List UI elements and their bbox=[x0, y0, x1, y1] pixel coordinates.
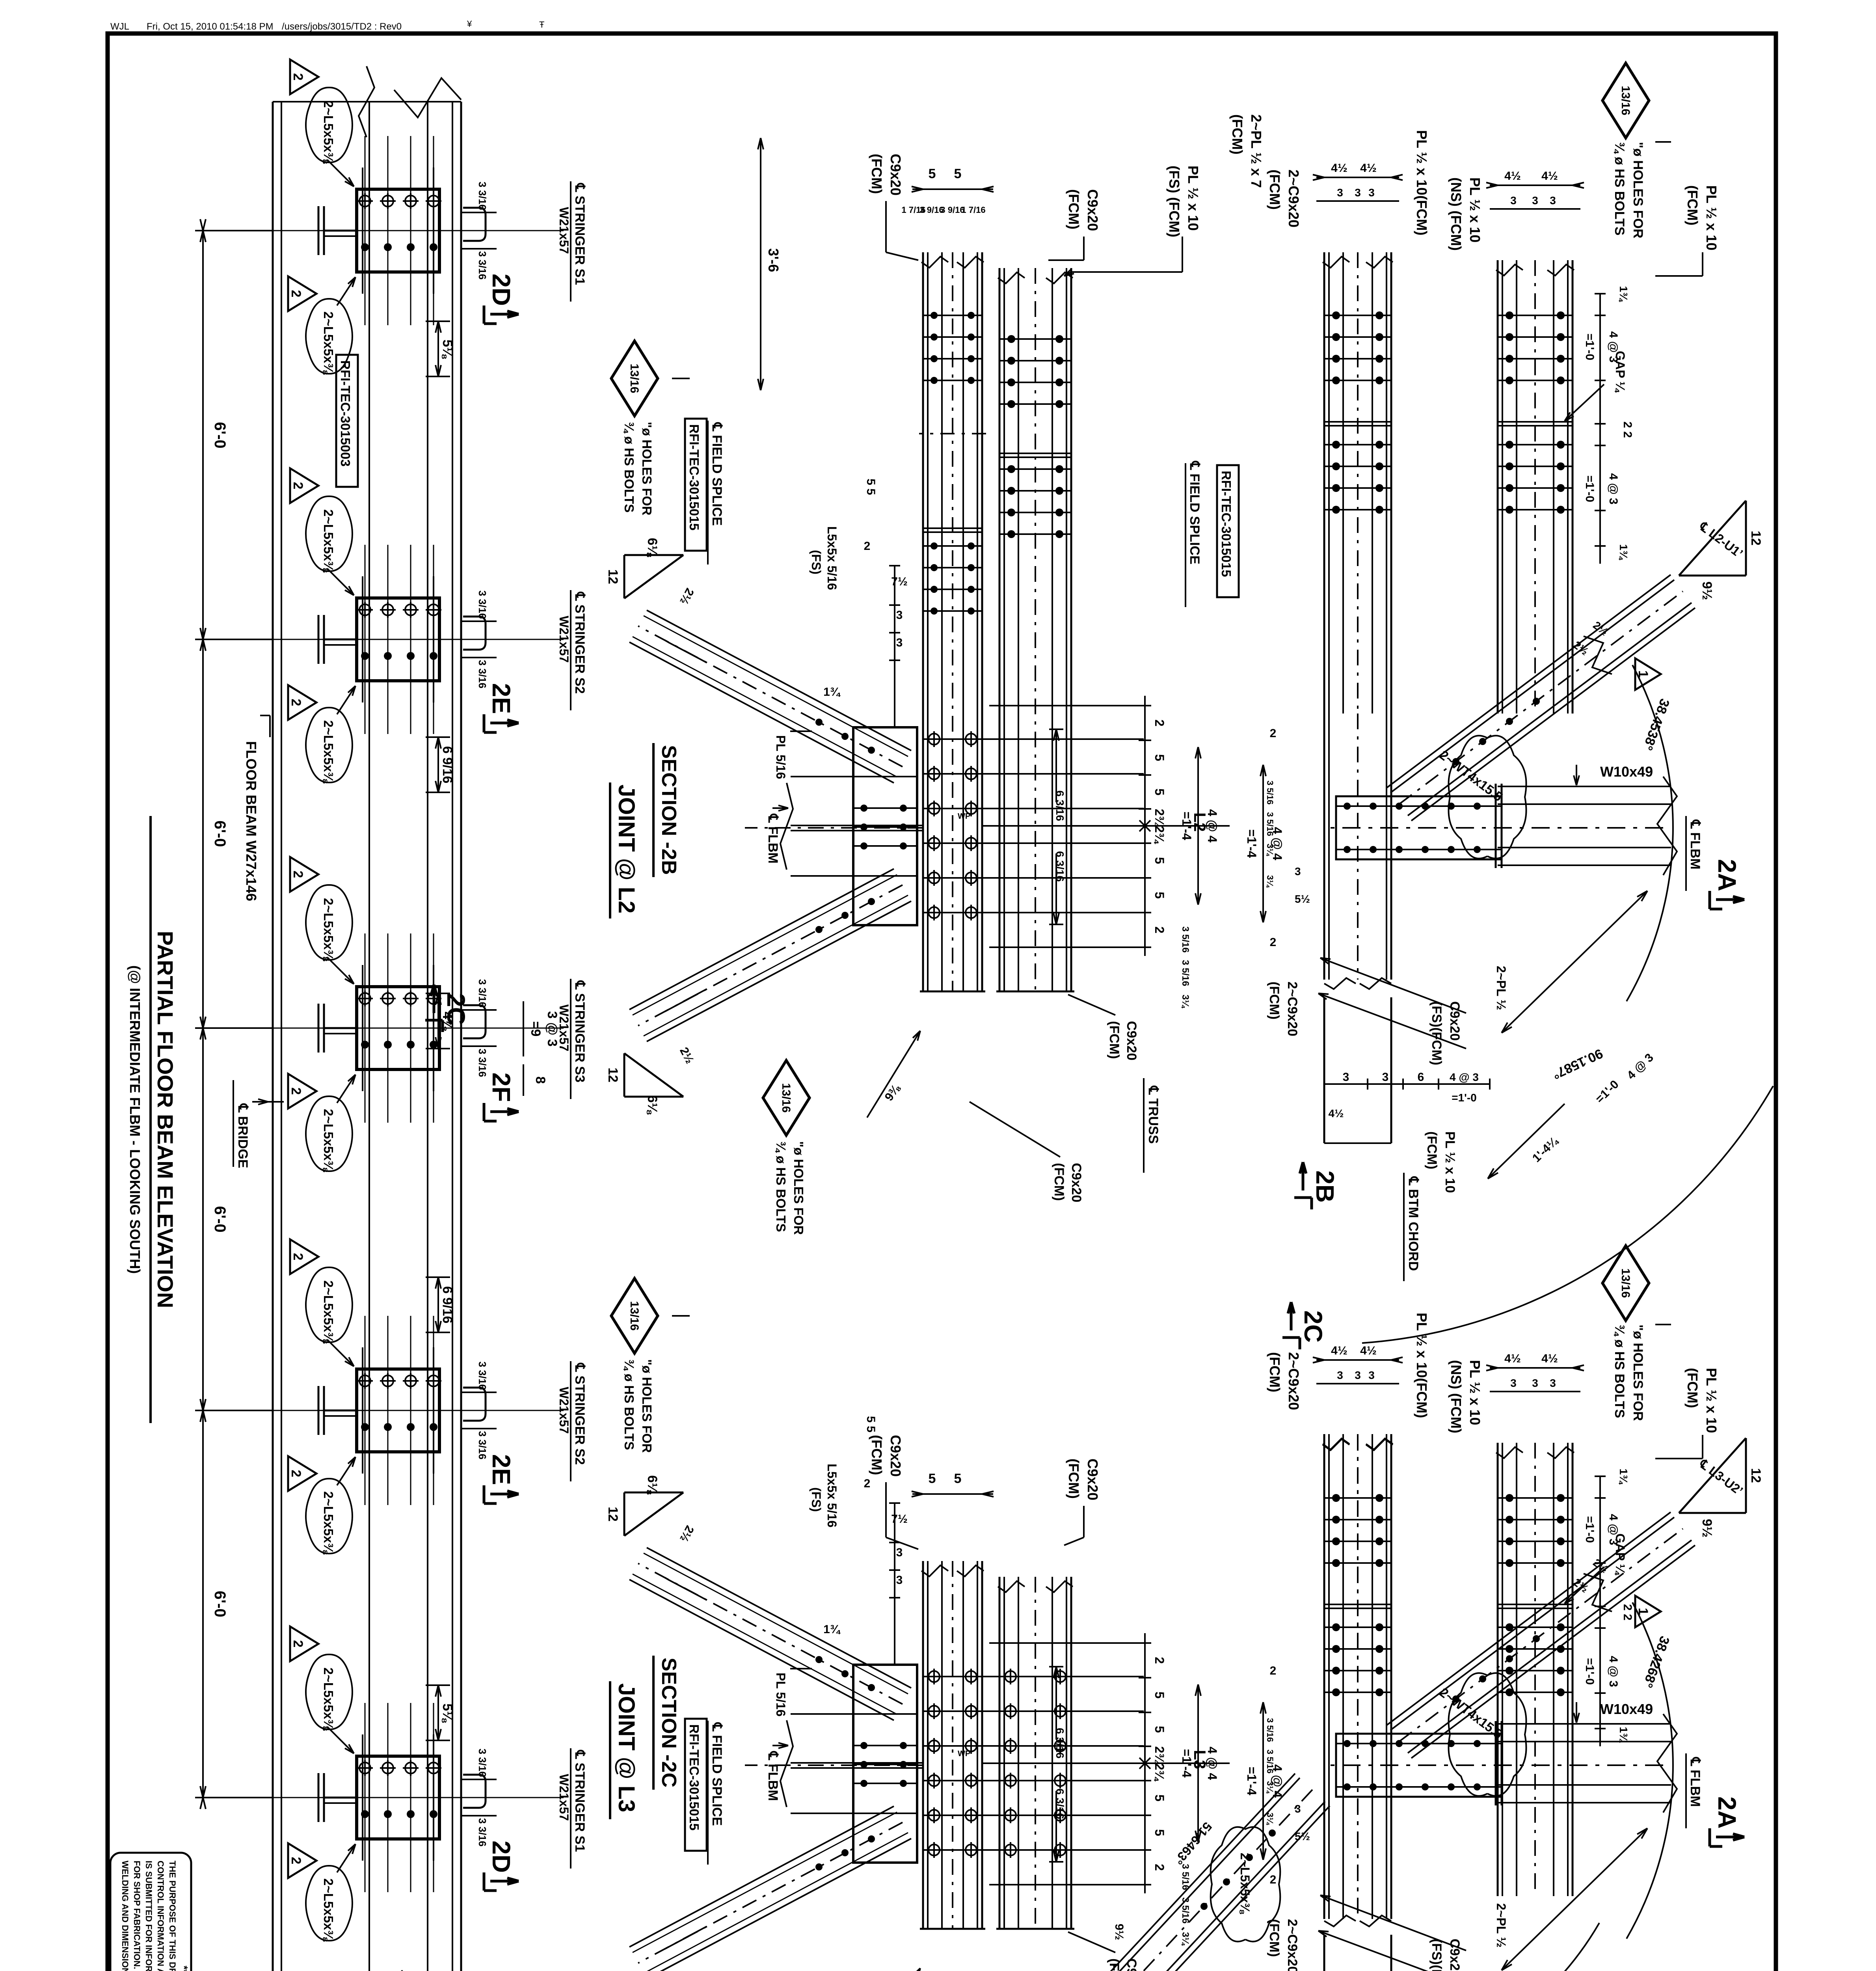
svg-text:4½: 4½ bbox=[1331, 162, 1347, 175]
svg-text:℄ STRINGER S2: ℄ STRINGER S2 bbox=[572, 591, 587, 694]
svg-text:6⅛: 6⅛ bbox=[645, 538, 660, 557]
svg-text:5: 5 bbox=[1152, 1794, 1167, 1801]
svg-text:PL 5/16: PL 5/16 bbox=[774, 1673, 788, 1716]
svg-text:2: 2 bbox=[1270, 1873, 1277, 1886]
svg-text:¾ ø HS BOLTS: ¾ ø HS BOLTS bbox=[774, 1141, 788, 1232]
svg-text:C9x20: C9x20 bbox=[888, 154, 904, 196]
svg-text:3 3/16: 3 3/16 bbox=[476, 182, 488, 210]
svg-text:2: 2 bbox=[288, 290, 303, 298]
svg-text:2: 2 bbox=[864, 1477, 871, 1490]
svg-text:W21x57: W21x57 bbox=[557, 1774, 571, 1821]
svg-text:IS SUBMITTED FOR INFORMATION O: IS SUBMITTED FOR INFORMATION ONLY ℄ IS N… bbox=[144, 1861, 154, 1971]
svg-text:PL ½ x 10: PL ½ x 10 bbox=[1703, 1368, 1720, 1433]
svg-text:3: 3 bbox=[896, 1546, 903, 1559]
svg-text:(FCM): (FCM) bbox=[1684, 1368, 1701, 1408]
svg-text:2¾: 2¾ bbox=[1152, 826, 1167, 844]
svg-text:℄ BRIDGE: ℄ BRIDGE bbox=[235, 1103, 250, 1168]
svg-text:5: 5 bbox=[1152, 892, 1167, 899]
svg-text:PL ½ x 10(FCM): PL ½ x 10(FCM) bbox=[1414, 1313, 1430, 1418]
svg-text:(FCM): (FCM) bbox=[1107, 1021, 1122, 1059]
svg-text:2~L5x5x⅜: 2~L5x5x⅜ bbox=[321, 898, 336, 961]
svg-text:2E: 2E bbox=[487, 683, 516, 714]
svg-text:=1'-4: =1'-4 bbox=[1245, 1767, 1259, 1796]
svg-text:2: 2 bbox=[288, 1470, 303, 1477]
svg-text:(FS): (FS) bbox=[809, 1487, 823, 1512]
svg-text:2~C9x20: 2~C9x20 bbox=[1286, 1352, 1302, 1410]
svg-text:3 5/16: 3 5/16 bbox=[1180, 960, 1191, 986]
svg-text:2¾: 2¾ bbox=[1152, 1763, 1167, 1782]
svg-text:2: 2 bbox=[288, 699, 303, 706]
svg-text:GAP ¼: GAP ¼ bbox=[1613, 351, 1627, 393]
svg-text:C9x20: C9x20 bbox=[888, 1435, 904, 1477]
svg-text:3 5/16: 3 5/16 bbox=[1265, 781, 1275, 805]
svg-text:"ø HOLES FOR: "ø HOLES FOR bbox=[1630, 142, 1645, 238]
svg-text:3 3/16: 3 3/16 bbox=[476, 591, 488, 619]
svg-text:2A: 2A bbox=[1713, 1796, 1741, 1829]
svg-text:1¾: 1¾ bbox=[1617, 1469, 1630, 1485]
svg-text:2~C9x20: 2~C9x20 bbox=[1285, 982, 1300, 1036]
svg-text:WJL: WJL bbox=[110, 21, 129, 32]
svg-text:3 5/16: 3 5/16 bbox=[1265, 1749, 1275, 1774]
svg-text:4 @ 3: 4 @ 3 bbox=[1450, 1071, 1479, 1083]
svg-text:C9x20: C9x20 bbox=[1085, 1459, 1101, 1500]
svg-text:1¾: 1¾ bbox=[1617, 286, 1630, 303]
svg-text:12: 12 bbox=[605, 1507, 620, 1522]
svg-text:2~L5x5x⅜: 2~L5x5x⅜ bbox=[321, 311, 336, 375]
svg-text:W21x57: W21x57 bbox=[557, 616, 571, 663]
svg-text:2: 2 bbox=[1152, 926, 1167, 933]
svg-text:/users/jobs/3015/TD2 : Rev0: /users/jobs/3015/TD2 : Rev0 bbox=[282, 21, 402, 32]
svg-text:(FCM): (FCM) bbox=[1684, 185, 1701, 225]
svg-text:℄ STRINGER S3: ℄ STRINGER S3 bbox=[572, 980, 587, 1082]
svg-text:=1'-0: =1'-0 bbox=[1452, 1092, 1476, 1104]
svg-text:3: 3 bbox=[1532, 1377, 1538, 1389]
svg-text:5: 5 bbox=[929, 1471, 936, 1486]
svg-text:"ø HOLES FOR: "ø HOLES FOR bbox=[1630, 1325, 1645, 1421]
svg-text:(FCM): (FCM) bbox=[1267, 170, 1283, 210]
svg-text:Fri, Oct 15, 2010 01:54:18 PM: Fri, Oct 15, 2010 01:54:18 PM bbox=[147, 21, 274, 32]
svg-text:6: 6 bbox=[1418, 1071, 1424, 1084]
svg-text:2: 2 bbox=[864, 540, 871, 553]
svg-text:℄ FLBM: ℄ FLBM bbox=[765, 813, 780, 864]
svg-text:2~L5x5x⅜: 2~L5x5x⅜ bbox=[321, 1491, 336, 1555]
svg-text:4½: 4½ bbox=[1504, 1352, 1521, 1365]
svg-text:3 3/16: 3 3/16 bbox=[476, 1362, 488, 1390]
svg-text:=1'-0: =1'-0 bbox=[1583, 333, 1596, 360]
svg-text:WP: WP bbox=[958, 1749, 970, 1758]
svg-text:2E: 2E bbox=[487, 1454, 516, 1485]
svg-text:5: 5 bbox=[1152, 754, 1167, 761]
svg-text:JOINT @ L3: JOINT @ L3 bbox=[614, 1683, 639, 1812]
svg-text:6⅛: 6⅛ bbox=[645, 1475, 660, 1495]
svg-text:6 9/16: 6 9/16 bbox=[440, 1286, 455, 1324]
svg-text:2: 2 bbox=[290, 871, 305, 878]
svg-text:2C: 2C bbox=[1299, 1310, 1327, 1343]
svg-text:6'-0: 6'-0 bbox=[211, 422, 229, 448]
svg-text:2: 2 bbox=[288, 1088, 303, 1095]
svg-text:=1'-0: =1'-0 bbox=[1583, 1658, 1596, 1685]
svg-text:3: 3 bbox=[1510, 1377, 1517, 1389]
svg-text:2¾: 2¾ bbox=[1152, 1746, 1167, 1765]
svg-text:2: 2 bbox=[1270, 727, 1277, 740]
svg-text:5⅛: 5⅛ bbox=[440, 339, 455, 359]
svg-text:C9x20: C9x20 bbox=[1069, 1163, 1084, 1202]
svg-text:℄ FIELD SPLICE: ℄ FIELD SPLICE bbox=[709, 422, 724, 526]
svg-text:2: 2 bbox=[1152, 719, 1167, 727]
svg-text:6⅛: 6⅛ bbox=[645, 1095, 660, 1115]
svg-text:3 @ 3: 3 @ 3 bbox=[545, 1011, 560, 1047]
svg-text:4 @ 3: 4 @ 3 bbox=[1607, 1656, 1620, 1687]
svg-text:THE PURPOSE OF THIS DRAWING IS: THE PURPOSE OF THIS DRAWING IS TO COORDI… bbox=[167, 1861, 177, 1971]
svg-text:6'-0: 6'-0 bbox=[211, 1206, 229, 1232]
svg-text:3: 3 bbox=[1510, 194, 1517, 207]
svg-text:(FCM): (FCM) bbox=[1066, 189, 1082, 229]
svg-text:℄ BTM CHORD: ℄ BTM CHORD bbox=[1406, 1176, 1421, 1271]
svg-text:5: 5 bbox=[1152, 857, 1167, 864]
svg-text:5⅛: 5⅛ bbox=[440, 1703, 455, 1723]
svg-text:** NOTE **: ** NOTE ** bbox=[178, 1965, 190, 1971]
svg-text:=1'-4: =1'-4 bbox=[1245, 829, 1259, 858]
svg-text:6'-0: 6'-0 bbox=[211, 1591, 229, 1617]
svg-text:2~C9x20: 2~C9x20 bbox=[1285, 1919, 1300, 1971]
svg-text:2: 2 bbox=[288, 1857, 303, 1865]
svg-text:PL 5/16: PL 5/16 bbox=[774, 735, 788, 779]
svg-text:3¼: 3¼ bbox=[1265, 1781, 1275, 1794]
svg-text:5: 5 bbox=[1152, 1829, 1167, 1836]
svg-text:5: 5 bbox=[1152, 1726, 1167, 1733]
svg-text:℄ STRINGER S1: ℄ STRINGER S1 bbox=[572, 1749, 587, 1852]
svg-text:(FS): (FS) bbox=[809, 550, 823, 574]
svg-text:2B: 2B bbox=[1311, 1170, 1339, 1203]
svg-text:2~L5x5x⅜: 2~L5x5x⅜ bbox=[321, 1109, 336, 1172]
svg-text:RFI-TEC-3015015: RFI-TEC-3015015 bbox=[687, 424, 702, 531]
svg-text:3: 3 bbox=[1355, 186, 1361, 199]
svg-text:PL ½ x 10(FCM): PL ½ x 10(FCM) bbox=[1414, 130, 1430, 235]
svg-text:13/16: 13/16 bbox=[1619, 1268, 1632, 1298]
svg-text:2C: 2C bbox=[442, 993, 470, 1025]
svg-text:13/16: 13/16 bbox=[628, 1301, 641, 1330]
svg-text:3 9/16: 3 9/16 bbox=[940, 205, 964, 215]
svg-text:¾ ø HS BOLTS: ¾ ø HS BOLTS bbox=[622, 1359, 636, 1450]
svg-text:RFI-TEC-3015003: RFI-TEC-3015003 bbox=[338, 360, 353, 467]
svg-text:WP: WP bbox=[958, 812, 970, 821]
svg-text:9½: 9½ bbox=[1699, 581, 1714, 600]
svg-text:2~L5x5x⅜: 2~L5x5x⅜ bbox=[321, 1280, 336, 1344]
svg-text:PL ½ x 10: PL ½ x 10 bbox=[1185, 166, 1201, 231]
svg-text:¾ ø HS BOLTS: ¾ ø HS BOLTS bbox=[622, 422, 636, 512]
svg-text:2~L5x5x⅜: 2~L5x5x⅜ bbox=[321, 101, 336, 164]
svg-text:℄ FLBM: ℄ FLBM bbox=[1688, 819, 1703, 870]
svg-text:4½: 4½ bbox=[1331, 1344, 1347, 1357]
svg-text:3 3/16: 3 3/16 bbox=[476, 251, 488, 279]
svg-text:L5x5x 5/16: L5x5x 5/16 bbox=[825, 526, 839, 590]
svg-text:3: 3 bbox=[1368, 1369, 1375, 1381]
svg-text:L2: L2 bbox=[1191, 812, 1209, 832]
svg-text:5: 5 bbox=[1152, 788, 1167, 795]
svg-text:2~PL ½: 2~PL ½ bbox=[1494, 1903, 1508, 1947]
svg-text:2 2: 2 2 bbox=[1621, 421, 1634, 438]
svg-text:¥: ¥ bbox=[467, 19, 472, 29]
svg-text:3 3/16: 3 3/16 bbox=[476, 979, 488, 1008]
svg-text:2~L5x5x⅜: 2~L5x5x⅜ bbox=[1238, 1853, 1252, 1914]
svg-text:(FCM): (FCM) bbox=[1267, 982, 1282, 1019]
svg-text:3 3/16: 3 3/16 bbox=[476, 1749, 488, 1777]
svg-text:2: 2 bbox=[290, 482, 305, 490]
svg-text:8: 8 bbox=[533, 1077, 548, 1084]
svg-text:2: 2 bbox=[1152, 1864, 1167, 1871]
svg-text:(FCM): (FCM) bbox=[1424, 1131, 1439, 1169]
svg-text:WELDING AND DIMENSIONS REQ'D F: WELDING AND DIMENSIONS REQ'D FOR FABRICA… bbox=[120, 1861, 130, 1971]
svg-text:RFI-TEC-3015015: RFI-TEC-3015015 bbox=[1219, 471, 1234, 577]
svg-text:6'-0: 6'-0 bbox=[211, 820, 229, 847]
svg-text:3: 3 bbox=[1343, 1071, 1349, 1084]
svg-text:2~L5x5x⅜: 2~L5x5x⅜ bbox=[321, 1667, 336, 1731]
svg-text:3: 3 bbox=[896, 1574, 903, 1587]
svg-text:9½: 9½ bbox=[1113, 1924, 1126, 1940]
svg-text:2: 2 bbox=[1152, 1657, 1167, 1664]
svg-text:3: 3 bbox=[896, 609, 903, 622]
svg-text:3 5/16: 3 5/16 bbox=[1180, 1864, 1191, 1890]
svg-text:C9x20: C9x20 bbox=[1085, 189, 1101, 231]
svg-text:=1'-0: =1'-0 bbox=[1583, 475, 1596, 502]
svg-text:℄ FIELD SPLICE: ℄ FIELD SPLICE bbox=[709, 1722, 724, 1826]
svg-text:L5x5x 5/16: L5x5x 5/16 bbox=[825, 1464, 839, 1528]
svg-text:RFI-TEC-3015015: RFI-TEC-3015015 bbox=[687, 1724, 702, 1831]
svg-text:3'-6: 3'-6 bbox=[765, 248, 782, 272]
svg-text:℄ STRINGER S1: ℄ STRINGER S1 bbox=[572, 183, 587, 285]
svg-text:13/16: 13/16 bbox=[1619, 86, 1632, 115]
svg-text:(FCM): (FCM) bbox=[1267, 1352, 1283, 1392]
svg-text:4½: 4½ bbox=[1360, 1344, 1377, 1357]
svg-text:(@ INTERMEDIATE FLBM - LOOKING: (@ INTERMEDIATE FLBM - LOOKING SOUTH) bbox=[127, 965, 143, 1274]
svg-text:W10x49: W10x49 bbox=[1600, 764, 1653, 780]
svg-text:¾ ø HS BOLTS: ¾ ø HS BOLTS bbox=[1612, 142, 1627, 235]
svg-text:3: 3 bbox=[1337, 1369, 1343, 1381]
svg-text:PL ½ x 10: PL ½ x 10 bbox=[1467, 177, 1483, 242]
svg-text:PL ½ x 10: PL ½ x 10 bbox=[1442, 1131, 1457, 1193]
svg-text:(FCM): (FCM) bbox=[869, 1435, 885, 1475]
svg-text:2D: 2D bbox=[487, 274, 516, 306]
svg-text:W10x49: W10x49 bbox=[1600, 1701, 1653, 1717]
svg-text:Ŧ: Ŧ bbox=[539, 20, 544, 30]
svg-text:3¼: 3¼ bbox=[1180, 995, 1191, 1008]
svg-text:W21x57: W21x57 bbox=[557, 207, 571, 254]
svg-text:2: 2 bbox=[1270, 1664, 1277, 1677]
svg-text:4½: 4½ bbox=[1360, 162, 1377, 175]
svg-text:"ø HOLES FOR: "ø HOLES FOR bbox=[640, 422, 654, 516]
svg-text:℄ FLBM: ℄ FLBM bbox=[765, 1751, 780, 1801]
svg-text:12: 12 bbox=[1748, 1468, 1763, 1483]
svg-text:1¾: 1¾ bbox=[823, 1623, 841, 1636]
svg-text:1 7/16: 1 7/16 bbox=[961, 205, 985, 215]
svg-text:4½: 4½ bbox=[1541, 170, 1558, 183]
svg-text:℄ FLBM: ℄ FLBM bbox=[1688, 1757, 1703, 1807]
svg-text:(NS) (FCM): (NS) (FCM) bbox=[1448, 177, 1464, 251]
svg-text:3: 3 bbox=[1295, 865, 1301, 877]
svg-text:(FCM): (FCM) bbox=[1229, 114, 1245, 155]
svg-text:3 5/16: 3 5/16 bbox=[1265, 1718, 1275, 1742]
svg-text:3 5/16: 3 5/16 bbox=[1180, 926, 1191, 953]
svg-text:SECTION -2B: SECTION -2B bbox=[657, 745, 680, 875]
svg-text:3 3/16: 3 3/16 bbox=[476, 1431, 488, 1459]
svg-text:(FS)(FCM): (FS)(FCM) bbox=[1429, 1939, 1444, 1971]
svg-text:"ø HOLES FOR: "ø HOLES FOR bbox=[640, 1359, 654, 1453]
svg-text:3: 3 bbox=[1368, 186, 1375, 199]
svg-text:℄ TRUSS: ℄ TRUSS bbox=[1146, 1085, 1161, 1144]
svg-text:℄ FIELD SPLICE: ℄ FIELD SPLICE bbox=[1187, 460, 1202, 564]
svg-text:5: 5 bbox=[954, 166, 962, 181]
svg-text:12: 12 bbox=[605, 1067, 620, 1082]
svg-text:4½: 4½ bbox=[1541, 1352, 1558, 1365]
svg-text:5 5: 5 5 bbox=[864, 1416, 877, 1433]
svg-text:1¾: 1¾ bbox=[1617, 544, 1630, 561]
svg-text:JOINT @ L2: JOINT @ L2 bbox=[614, 784, 639, 913]
svg-text:=1'-0: =1'-0 bbox=[1583, 1516, 1596, 1543]
svg-text:3¼: 3¼ bbox=[1180, 1932, 1191, 1946]
svg-text:13/16: 13/16 bbox=[780, 1083, 793, 1112]
svg-text:3: 3 bbox=[1382, 1071, 1389, 1084]
svg-text:2~L5x5x⅜: 2~L5x5x⅜ bbox=[321, 1878, 336, 1942]
svg-text:FOR SHOP FABRICATION. DETAIL: FOR SHOP FABRICATION. DETAIL DWGS WILL S… bbox=[132, 1861, 142, 1971]
svg-text:2: 2 bbox=[290, 1253, 305, 1261]
svg-text:5: 5 bbox=[929, 166, 936, 181]
svg-text:3 3/16: 3 3/16 bbox=[476, 1818, 488, 1846]
svg-text:L3: L3 bbox=[1191, 1750, 1209, 1769]
svg-text:PL ½ x 10: PL ½ x 10 bbox=[1467, 1360, 1483, 1425]
svg-text:3 3/16: 3 3/16 bbox=[476, 660, 488, 688]
svg-text:2~PL ½ x 7: 2~PL ½ x 7 bbox=[1248, 114, 1264, 188]
svg-text:3 3/16: 3 3/16 bbox=[476, 1049, 488, 1077]
svg-text:2: 2 bbox=[290, 73, 305, 81]
svg-text:SECTION -2C: SECTION -2C bbox=[657, 1658, 680, 1787]
svg-text:2~C9x20: 2~C9x20 bbox=[1286, 170, 1302, 227]
svg-text:1¾: 1¾ bbox=[823, 686, 841, 699]
svg-text:℄ STRINGER S2: ℄ STRINGER S2 bbox=[572, 1362, 587, 1465]
svg-text:7½: 7½ bbox=[891, 575, 908, 588]
svg-text:2: 2 bbox=[290, 1640, 305, 1648]
svg-text:(FCM): (FCM) bbox=[1107, 1958, 1122, 1971]
svg-text:=9: =9 bbox=[528, 1021, 543, 1037]
svg-text:3: 3 bbox=[1532, 194, 1538, 207]
svg-text:PL ½ x 10: PL ½ x 10 bbox=[1703, 185, 1720, 250]
svg-text:PARTIAL FLOOR BEAM ELEVATION: PARTIAL FLOOR BEAM ELEVATION bbox=[153, 931, 178, 1308]
svg-text:2~PL ½: 2~PL ½ bbox=[1494, 966, 1508, 1010]
svg-text:4½: 4½ bbox=[1504, 170, 1521, 183]
svg-text:W21x57: W21x57 bbox=[557, 1387, 571, 1434]
svg-text:3: 3 bbox=[1550, 1377, 1556, 1389]
svg-text:2~L5x5x⅜: 2~L5x5x⅜ bbox=[321, 720, 336, 784]
svg-text:3 5/16: 3 5/16 bbox=[1265, 812, 1275, 836]
svg-text:3: 3 bbox=[1355, 1369, 1361, 1381]
svg-text:13/16: 13/16 bbox=[628, 363, 641, 393]
svg-text:1 7/16: 1 7/16 bbox=[901, 205, 925, 215]
svg-text:4½: 4½ bbox=[1329, 1107, 1344, 1120]
svg-text:(FS)(FCM): (FS)(FCM) bbox=[1429, 1001, 1444, 1065]
svg-text:5: 5 bbox=[954, 1471, 962, 1486]
svg-text:12: 12 bbox=[1748, 531, 1763, 546]
svg-text:5 5: 5 5 bbox=[864, 479, 877, 495]
svg-text:"ø HOLES FOR: "ø HOLES FOR bbox=[791, 1141, 806, 1235]
svg-text:4 @ 3: 4 @ 3 bbox=[1607, 473, 1620, 504]
svg-text:2~L5x5x⅜: 2~L5x5x⅜ bbox=[321, 509, 336, 573]
svg-text:CONTROL INFORMATION AND CONNEC: CONTROL INFORMATION AND CONNECTION SPACI… bbox=[156, 1861, 166, 1971]
svg-text:(FCM): (FCM) bbox=[1066, 1459, 1082, 1499]
svg-text:5: 5 bbox=[1152, 1692, 1167, 1699]
svg-text:2: 2 bbox=[1270, 936, 1277, 949]
svg-text:6 9/16: 6 9/16 bbox=[440, 746, 455, 784]
svg-text:1¾: 1¾ bbox=[1617, 1727, 1630, 1744]
svg-text:2D: 2D bbox=[487, 1841, 516, 1873]
svg-text:3¼: 3¼ bbox=[1265, 875, 1275, 888]
svg-text:3¼: 3¼ bbox=[1265, 844, 1275, 856]
svg-text:9½: 9½ bbox=[1699, 1519, 1714, 1537]
svg-text:(FCM): (FCM) bbox=[869, 154, 885, 194]
svg-text:2¾: 2¾ bbox=[1152, 809, 1167, 827]
svg-text:2 2: 2 2 bbox=[1621, 1604, 1634, 1621]
svg-text:2F: 2F bbox=[487, 1073, 516, 1102]
svg-text:2A: 2A bbox=[1713, 859, 1741, 891]
svg-text:C9x20: C9x20 bbox=[1124, 1021, 1139, 1060]
svg-text:(FCM): (FCM) bbox=[1052, 1163, 1066, 1201]
svg-text:FLOOR BEAM W27x146: FLOOR BEAM W27x146 bbox=[243, 741, 259, 901]
svg-text:(FS) (FCM): (FS) (FCM) bbox=[1166, 166, 1182, 237]
svg-text:3: 3 bbox=[1337, 186, 1343, 199]
svg-text:(NS) (FCM): (NS) (FCM) bbox=[1448, 1360, 1464, 1433]
svg-text:12: 12 bbox=[605, 569, 620, 584]
svg-text:7½: 7½ bbox=[891, 1513, 908, 1526]
svg-text:¾ ø HS BOLTS: ¾ ø HS BOLTS bbox=[1612, 1325, 1627, 1418]
svg-text:3: 3 bbox=[1550, 194, 1556, 207]
svg-text:3: 3 bbox=[896, 636, 903, 649]
svg-text:5½: 5½ bbox=[1295, 893, 1310, 905]
